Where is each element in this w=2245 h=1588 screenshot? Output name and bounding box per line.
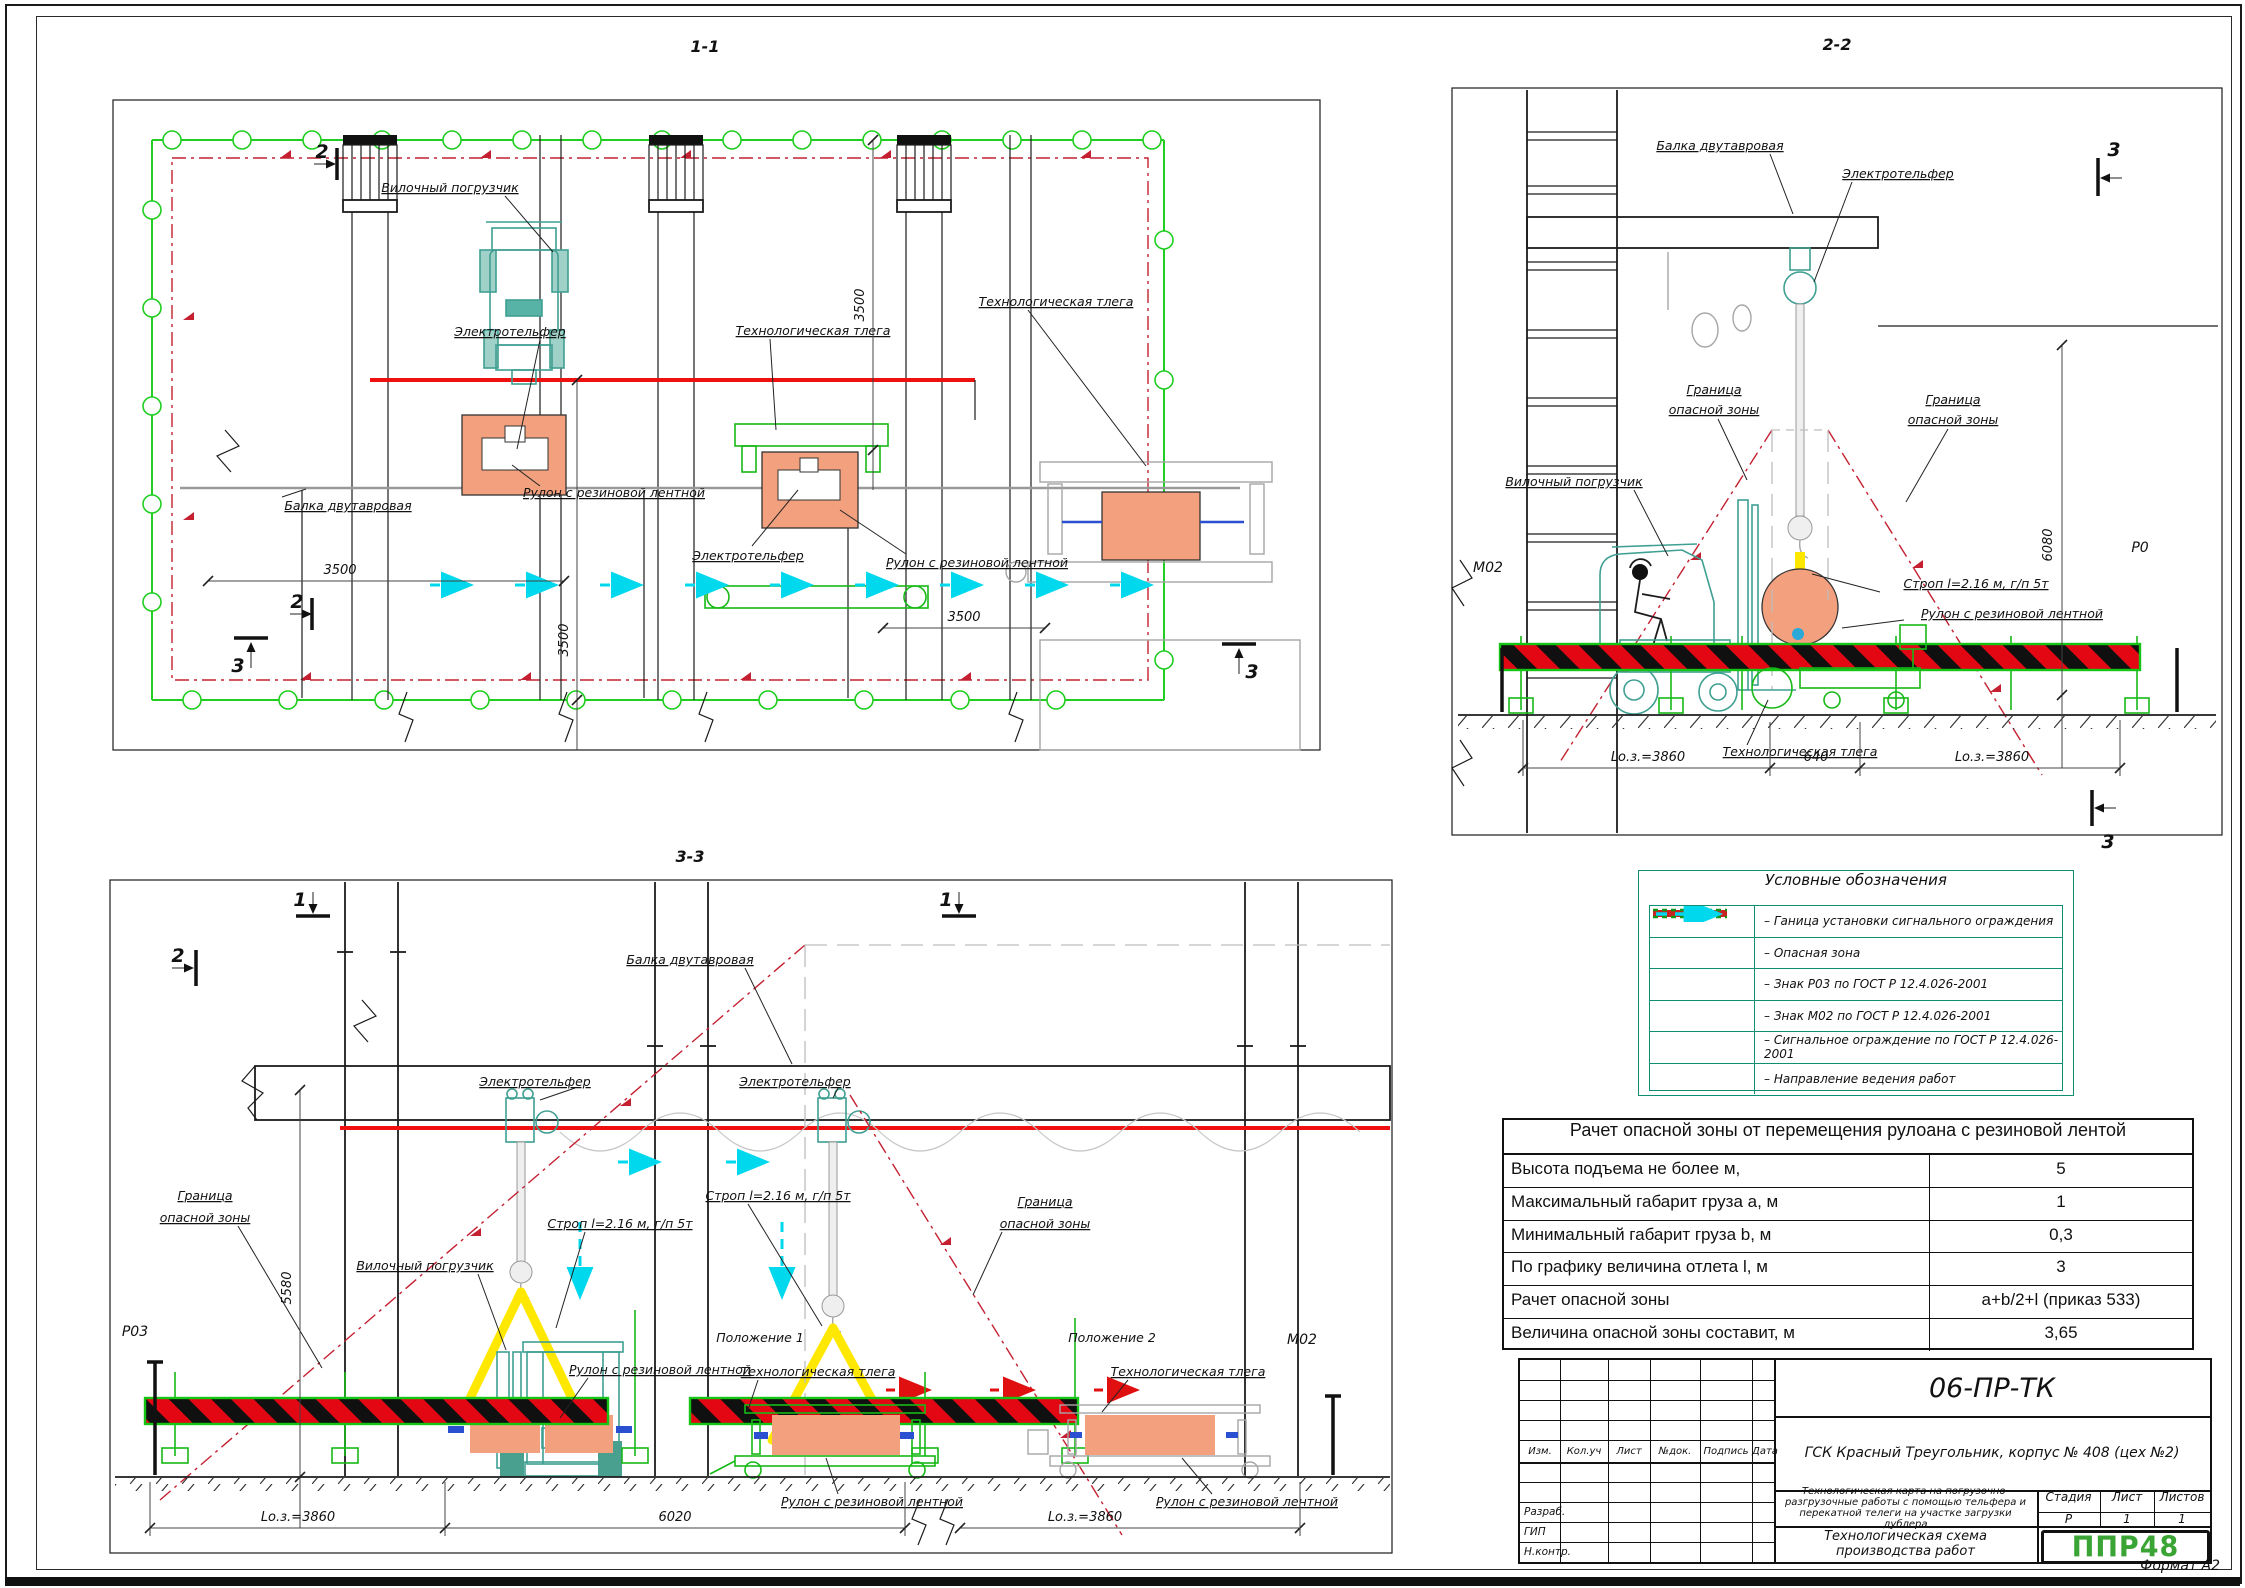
label-hoist1-33: Электротельфер xyxy=(478,1074,591,1089)
object-name: ГСК Красный Треугольник, корпус № 408 (ц… xyxy=(1774,1416,2210,1490)
calc-row: Максимальный габарит груза a, м 1 xyxy=(1504,1188,2192,1221)
stage-header: Стадия xyxy=(2037,1490,2100,1512)
red-line-icon xyxy=(1650,938,1755,969)
label-boundary-l1-33: Граница xyxy=(177,1188,232,1203)
legend-row: – Знак М02 по ГОСТ Р 12.4.026-2001 xyxy=(1650,1001,2062,1033)
rev-header: Лист xyxy=(1608,1446,1650,1457)
view-3-3: 3-3 xyxy=(110,847,1392,1553)
label-position-1: Положение 1 xyxy=(716,1330,804,1345)
label-hoist-2: Электротельфер xyxy=(691,548,804,563)
calc-table-title: Рачет опасной зоны от перемещения рулоан… xyxy=(1504,1120,2192,1155)
section-markers-2-2: 3 3 xyxy=(2092,139,2122,853)
sign-m02: М02 xyxy=(1473,560,1503,576)
label-boundary-left-2: опасной зоны xyxy=(1669,402,1760,417)
rev-header: №док. xyxy=(1650,1446,1700,1457)
legend-title: Условные обозначения xyxy=(1639,871,2073,903)
roll-hub xyxy=(1792,628,1804,640)
label-roll-2: Рулон с резиновой лентной xyxy=(886,555,1068,570)
sign-m02-33: М02 xyxy=(1287,1332,1317,1348)
doc-number: 06-ПР-ТК xyxy=(1774,1360,2210,1416)
role-nkontr: Н.контр. xyxy=(1524,1546,1604,1558)
sign-p03-33: Р03 xyxy=(122,1324,148,1340)
label-forklift-22: Вилочный погрузчик xyxy=(1505,474,1643,489)
view-1-1: 1-1 xyxy=(113,37,1320,750)
sign-p03-icon xyxy=(1650,969,1755,1000)
label-sling1-33: Строп l=2.16 м, г/п 5т xyxy=(547,1216,693,1231)
svg-text:1: 1 xyxy=(939,889,952,911)
signal-fence-icon xyxy=(1650,1032,1755,1063)
legend: Условные обозначения – Ганица установки … xyxy=(1638,870,2074,1096)
dimensions-3-3: 5580 Lо.з.=3860 6020 Lо.з.=3860 xyxy=(145,1085,1305,1545)
svg-text:Lо.з.=3860: Lо.з.=3860 xyxy=(1048,1510,1122,1525)
label-trolley-22: Технологическая тлега xyxy=(1723,744,1878,759)
view-1-1-frame xyxy=(113,100,1320,750)
calc-row: Высота подъема не более м, 5 xyxy=(1504,1155,2192,1188)
svg-text:3: 3 xyxy=(231,655,244,677)
svg-text:6080: 6080 xyxy=(2041,528,2056,561)
label-roll-22: Рулон с резиновой лентной xyxy=(1921,606,2103,621)
view-2-2: 2-2 xyxy=(1452,35,2222,853)
svg-text:1: 1 xyxy=(293,889,306,911)
label-boundary-left-1: Граница xyxy=(1686,382,1741,397)
svg-text:3500: 3500 xyxy=(557,623,572,656)
svg-text:Lо.з.=3860: Lо.з.=3860 xyxy=(261,1510,335,1525)
svg-text:3: 3 xyxy=(1245,661,1258,683)
format-label: Формат А2 xyxy=(2040,1558,2220,1574)
svg-text:6020: 6020 xyxy=(658,1510,691,1525)
rev-header: Изм. xyxy=(1520,1446,1560,1457)
label-trolley-2: Технологическая тлега xyxy=(979,294,1134,309)
label-boundary-r1-33: Граница xyxy=(1017,1194,1072,1209)
label-trolley1-33: Технологическая тлега xyxy=(741,1364,896,1379)
sheets-value: 1 xyxy=(2154,1512,2210,1526)
svg-text:3500: 3500 xyxy=(853,288,868,321)
label-beam-33: Балка двутавровая xyxy=(626,952,754,967)
label-forklift: Вилочный погрузчик xyxy=(381,180,519,195)
label-forklift-33: Вилочный погрузчик xyxy=(356,1258,494,1273)
svg-text:Lо.з.=3860: Lо.з.=3860 xyxy=(1611,750,1685,765)
role-gip: ГИП xyxy=(1524,1526,1604,1538)
rev-header: Дата xyxy=(1752,1446,1774,1457)
svg-text:3500: 3500 xyxy=(323,563,356,578)
legend-row: – Опасная зона xyxy=(1650,938,2062,970)
label-sling2-33: Строп l=2.16 м, г/п 5т xyxy=(705,1188,851,1203)
role-razrab: Разраб. xyxy=(1524,1506,1604,1518)
label-sling-22: Строп l=2.16 м, г/п 5т xyxy=(1903,576,2049,591)
calc-row: Рачет опасной зоны a+b/2+l (приказ 533) xyxy=(1504,1286,2192,1319)
rev-header: Подпись xyxy=(1700,1446,1752,1457)
legend-row: – Сигнальное ограждение по ГОСТ Р 12.4.0… xyxy=(1650,1032,2062,1064)
break-symbol xyxy=(217,430,239,472)
stage-value: Р xyxy=(2037,1512,2100,1526)
view-3-3-title: 3-3 xyxy=(676,847,705,866)
calc-row: По графику величина отлета l, м 3 xyxy=(1504,1253,2192,1286)
label-roll2-33: Рулон с резиновой лентной xyxy=(781,1494,963,1509)
building-columns xyxy=(302,135,1031,700)
svg-text:2: 2 xyxy=(290,591,303,613)
cyan-arrow-icon xyxy=(1650,1064,1755,1095)
legend-row: – Знак Р03 по ГОСТ Р 12.4.026-2001 xyxy=(1650,969,2062,1001)
label-roll-1: Рулон с резиновой лентной xyxy=(523,485,705,500)
drawing-sheet: 1-1 xyxy=(0,0,2245,1588)
sign-m02-icon xyxy=(1650,1001,1755,1032)
sheets-header: Листов xyxy=(2154,1490,2210,1512)
svg-text:3: 3 xyxy=(2107,139,2120,161)
roll-1 xyxy=(462,415,566,495)
signal-fence-3-3 xyxy=(145,1310,1088,1463)
svg-text:5580: 5580 xyxy=(280,1271,295,1304)
sheet-bottom-bar xyxy=(5,1577,2240,1586)
trolley-green-plan xyxy=(705,424,928,608)
svg-text:640: 640 xyxy=(1804,750,1829,765)
legend-row: – Направление ведения работ xyxy=(1650,1064,2062,1095)
svg-text:2: 2 xyxy=(171,945,184,967)
hoist-2-2 xyxy=(1668,248,1816,600)
label-boundary-right-2: опасной зоны xyxy=(1908,412,1999,427)
svg-text:3500: 3500 xyxy=(947,610,980,625)
label-hoist-1: Электротельфер xyxy=(453,324,566,339)
svg-text:Lо.з.=3860: Lо.з.=3860 xyxy=(1955,750,2029,765)
label-hoist2-33: Электротельфер xyxy=(738,1074,851,1089)
label-beam-22: Балка двутавровая xyxy=(1656,138,1784,153)
sling-1b xyxy=(521,1292,580,1415)
label-roll3-33: Рулон с резиновой лентной xyxy=(1156,1494,1338,1509)
label-hoist-22: Электротельфер xyxy=(1841,166,1954,181)
label-beam: Балка двутавровая xyxy=(284,498,412,513)
label-boundary-r2-33: опасной зоны xyxy=(1000,1216,1091,1231)
section-markers-3-3: 1 1 2 xyxy=(171,889,976,986)
cable-festoon xyxy=(560,1113,1360,1151)
svg-text:3: 3 xyxy=(2101,831,2114,853)
beam-section xyxy=(1527,217,1878,248)
hoist-2-33 xyxy=(818,1089,870,1332)
label-trolley-1: Технологическая тлега xyxy=(736,323,891,338)
svg-text:2: 2 xyxy=(315,141,328,163)
scheme-title: Технологическая схема производства работ xyxy=(1774,1526,2037,1562)
dimensions-1-1: 3500 3500 3500 3500 xyxy=(203,135,1050,750)
view-1-1-title: 1-1 xyxy=(691,37,720,56)
label-trolley2-33: Технологическая тлега xyxy=(1111,1364,1266,1379)
columns-3-3 xyxy=(337,882,1306,1476)
calc-row: Величина опасной зоны составит, м 3,65 xyxy=(1504,1319,2192,1351)
label-position-2: Положение 2 xyxy=(1068,1330,1156,1345)
rev-header: Кол.уч xyxy=(1560,1446,1608,1457)
calc-table: Рачет опасной зоны от перемещения рулоан… xyxy=(1502,1118,2194,1350)
calc-row: Минимальный габарит груза b, м 0,3 xyxy=(1504,1221,2192,1254)
label-roll1-33: Рулон с резиновой лентной xyxy=(569,1362,751,1377)
sheet-header: Лист xyxy=(2100,1490,2154,1512)
title-block: Изм. Кол.уч Лист №док. Подпись Дата Разр… xyxy=(1518,1358,2212,1564)
forklift-plan xyxy=(480,222,568,384)
danger-zone-boundary xyxy=(172,150,1148,680)
view-2-2-title: 2-2 xyxy=(1823,35,1852,54)
label-boundary-right-1: Граница xyxy=(1925,392,1980,407)
label-boundary-l2-33: опасной зоны xyxy=(160,1210,251,1225)
doc-description: Технологическая карта на погрузочно-разг… xyxy=(1774,1490,2037,1526)
sign-p0: Р0 xyxy=(2131,540,2148,556)
sheet-value: 1 xyxy=(2100,1512,2154,1526)
